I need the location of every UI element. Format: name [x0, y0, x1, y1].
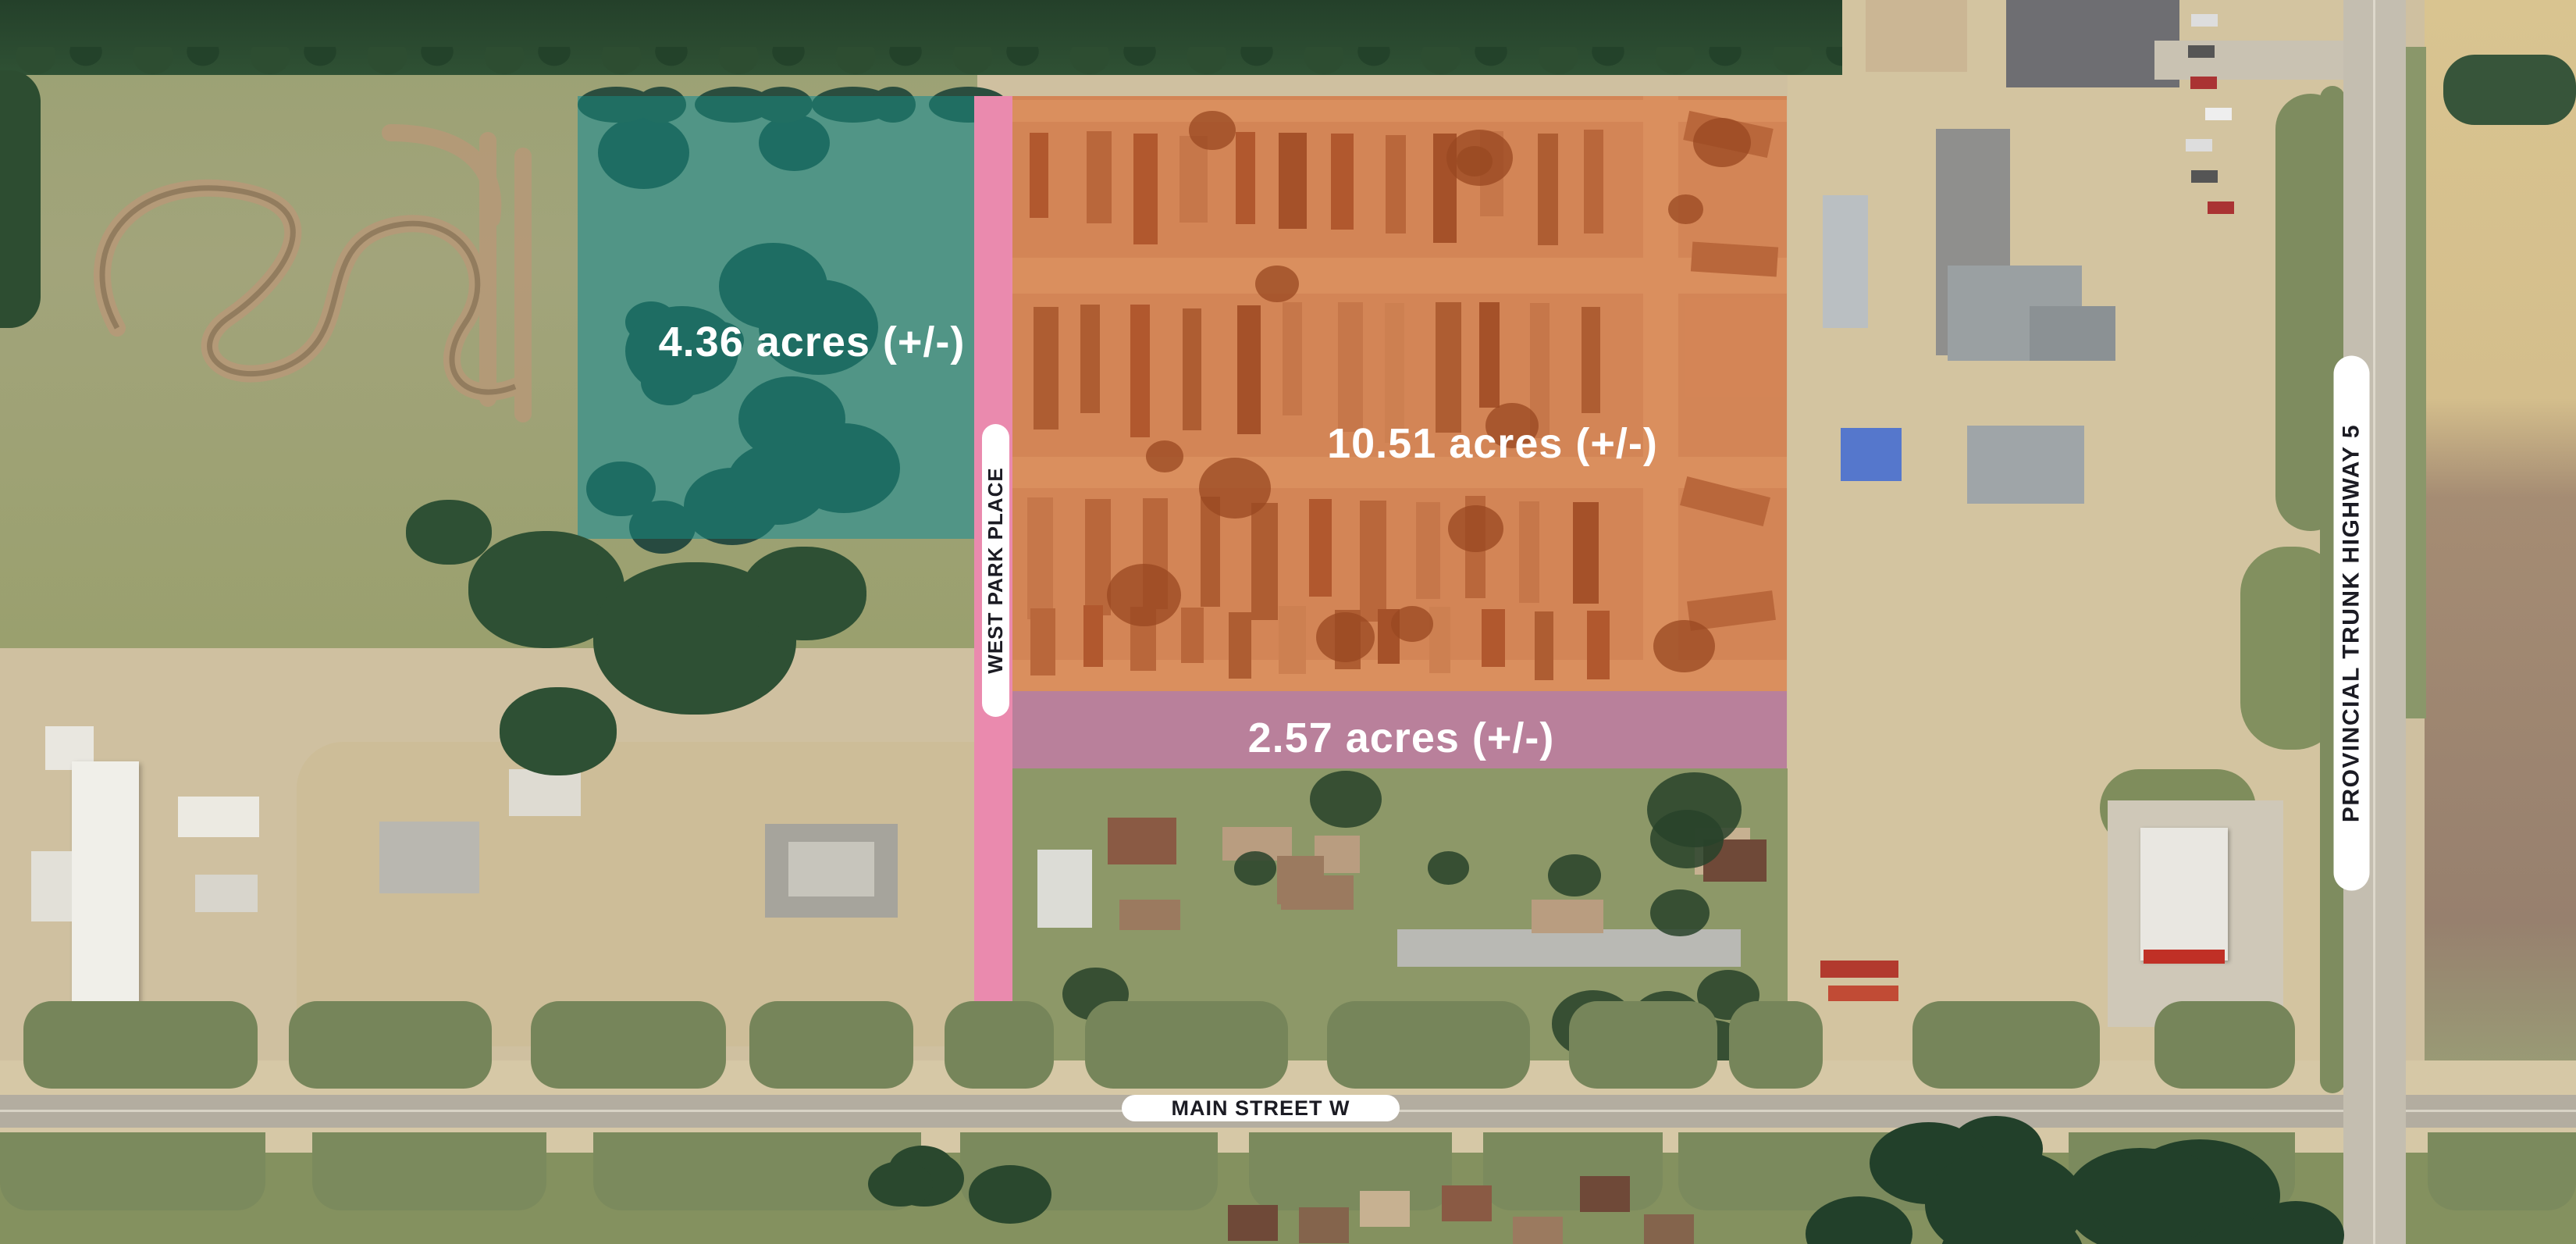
tree-cluster	[1234, 851, 1276, 885]
tree-cluster	[406, 500, 492, 565]
blue-roof-shed	[1841, 428, 1902, 481]
boulevard-grass	[1569, 1001, 1717, 1089]
road-label-main-street-w: MAIN STREET W	[1122, 1095, 1400, 1121]
building-roof	[31, 851, 72, 921]
tree-cluster	[1428, 851, 1470, 885]
gas-station-building	[2140, 828, 2228, 961]
parked-vehicle	[2188, 45, 2215, 58]
building-roof	[509, 769, 581, 816]
parked-vehicle	[2205, 108, 2232, 120]
parked-vehicle	[2190, 77, 2217, 89]
parcel-mobile-home-park-overlay	[1012, 96, 1787, 691]
building-roof	[72, 761, 139, 1031]
house-roof	[1299, 1207, 1349, 1243]
house-roof	[1580, 1176, 1630, 1212]
boulevard-grass	[1249, 1132, 1452, 1210]
parked-vehicle	[2208, 201, 2234, 214]
house-roof	[1360, 1191, 1410, 1227]
tree-cluster	[1548, 854, 1601, 896]
tree-cluster	[969, 1165, 1052, 1224]
building-roof	[195, 875, 258, 912]
boulevard-grass	[531, 1001, 726, 1089]
house-roof	[1644, 1214, 1694, 1244]
boulevard-grass	[312, 1132, 546, 1210]
house-roof	[1442, 1185, 1492, 1221]
tree-cluster	[1650, 889, 1710, 937]
tree-cluster	[1647, 772, 1742, 848]
parcel-south-strip-acreage-label: 2.57 acres (+/-)	[1248, 714, 1555, 762]
farmland	[2425, 0, 2576, 1244]
boulevard-grass	[945, 1001, 1054, 1089]
house-roof	[1119, 900, 1180, 929]
boulevard-grass	[0, 1132, 265, 1210]
gas-station-sign	[2144, 950, 2225, 964]
boulevard-grass	[1085, 1001, 1288, 1089]
building-roof	[1823, 195, 1868, 328]
tree-cluster	[2443, 55, 2576, 125]
house-roof	[1228, 1205, 1278, 1241]
parked-vehicle	[2191, 14, 2218, 27]
building-roof	[2006, 0, 2179, 87]
building-roof	[1866, 0, 1967, 72]
parked-vehicle	[2186, 139, 2212, 151]
building-roof	[1037, 850, 1092, 928]
house-roof	[1108, 818, 1176, 865]
side-road	[2154, 41, 2347, 80]
building-roof	[379, 822, 479, 893]
road-label-west-park-place: WEST PARK PLACE	[982, 424, 1009, 717]
tree-cluster	[1310, 771, 1381, 828]
house-roof	[1513, 1217, 1563, 1244]
boulevard-grass	[1327, 1001, 1530, 1089]
boulevard-grass	[23, 1001, 258, 1089]
boulevard-grass	[1912, 1001, 2100, 1089]
parked-vehicle	[2191, 170, 2218, 183]
house-roof	[1277, 856, 1324, 904]
boulevard-grass	[1729, 1001, 1823, 1089]
boulevard-grass	[2428, 1132, 2576, 1210]
road-label-provincial-trunk-highway-5: PROVINCIAL TRUNK HIGHWAY 5	[2334, 356, 2370, 891]
tree-cluster	[500, 687, 617, 775]
road-centerline	[2373, 0, 2375, 1244]
building-roof	[1967, 426, 2084, 504]
building-roof	[178, 797, 259, 837]
tree-cluster	[2090, 1149, 2225, 1243]
parcel-north-acreage-label: 4.36 acres (+/-)	[659, 318, 966, 366]
building-roof	[2030, 306, 2115, 361]
tree-row	[0, 0, 1842, 75]
grass-verge	[2406, 47, 2426, 718]
aerial-map: 4.36 acres (+/-) 10.51 acres (+/-) 2.57 …	[0, 0, 2576, 1244]
tree-cluster	[868, 1161, 933, 1207]
boulevard-grass	[749, 1001, 913, 1089]
parcel-mobile-home-park-acreage-label: 10.51 acres (+/-)	[1327, 419, 1658, 468]
boulevard-grass	[289, 1001, 492, 1089]
house-roof	[1532, 900, 1603, 933]
boulevard-grass	[2154, 1001, 2295, 1089]
red-trailer	[1828, 986, 1898, 1001]
red-trailer	[1820, 961, 1898, 978]
building-roof	[788, 842, 874, 896]
motocross-track	[23, 86, 562, 445]
boulevard-grass	[1483, 1132, 1663, 1210]
tree-cluster	[742, 547, 866, 640]
